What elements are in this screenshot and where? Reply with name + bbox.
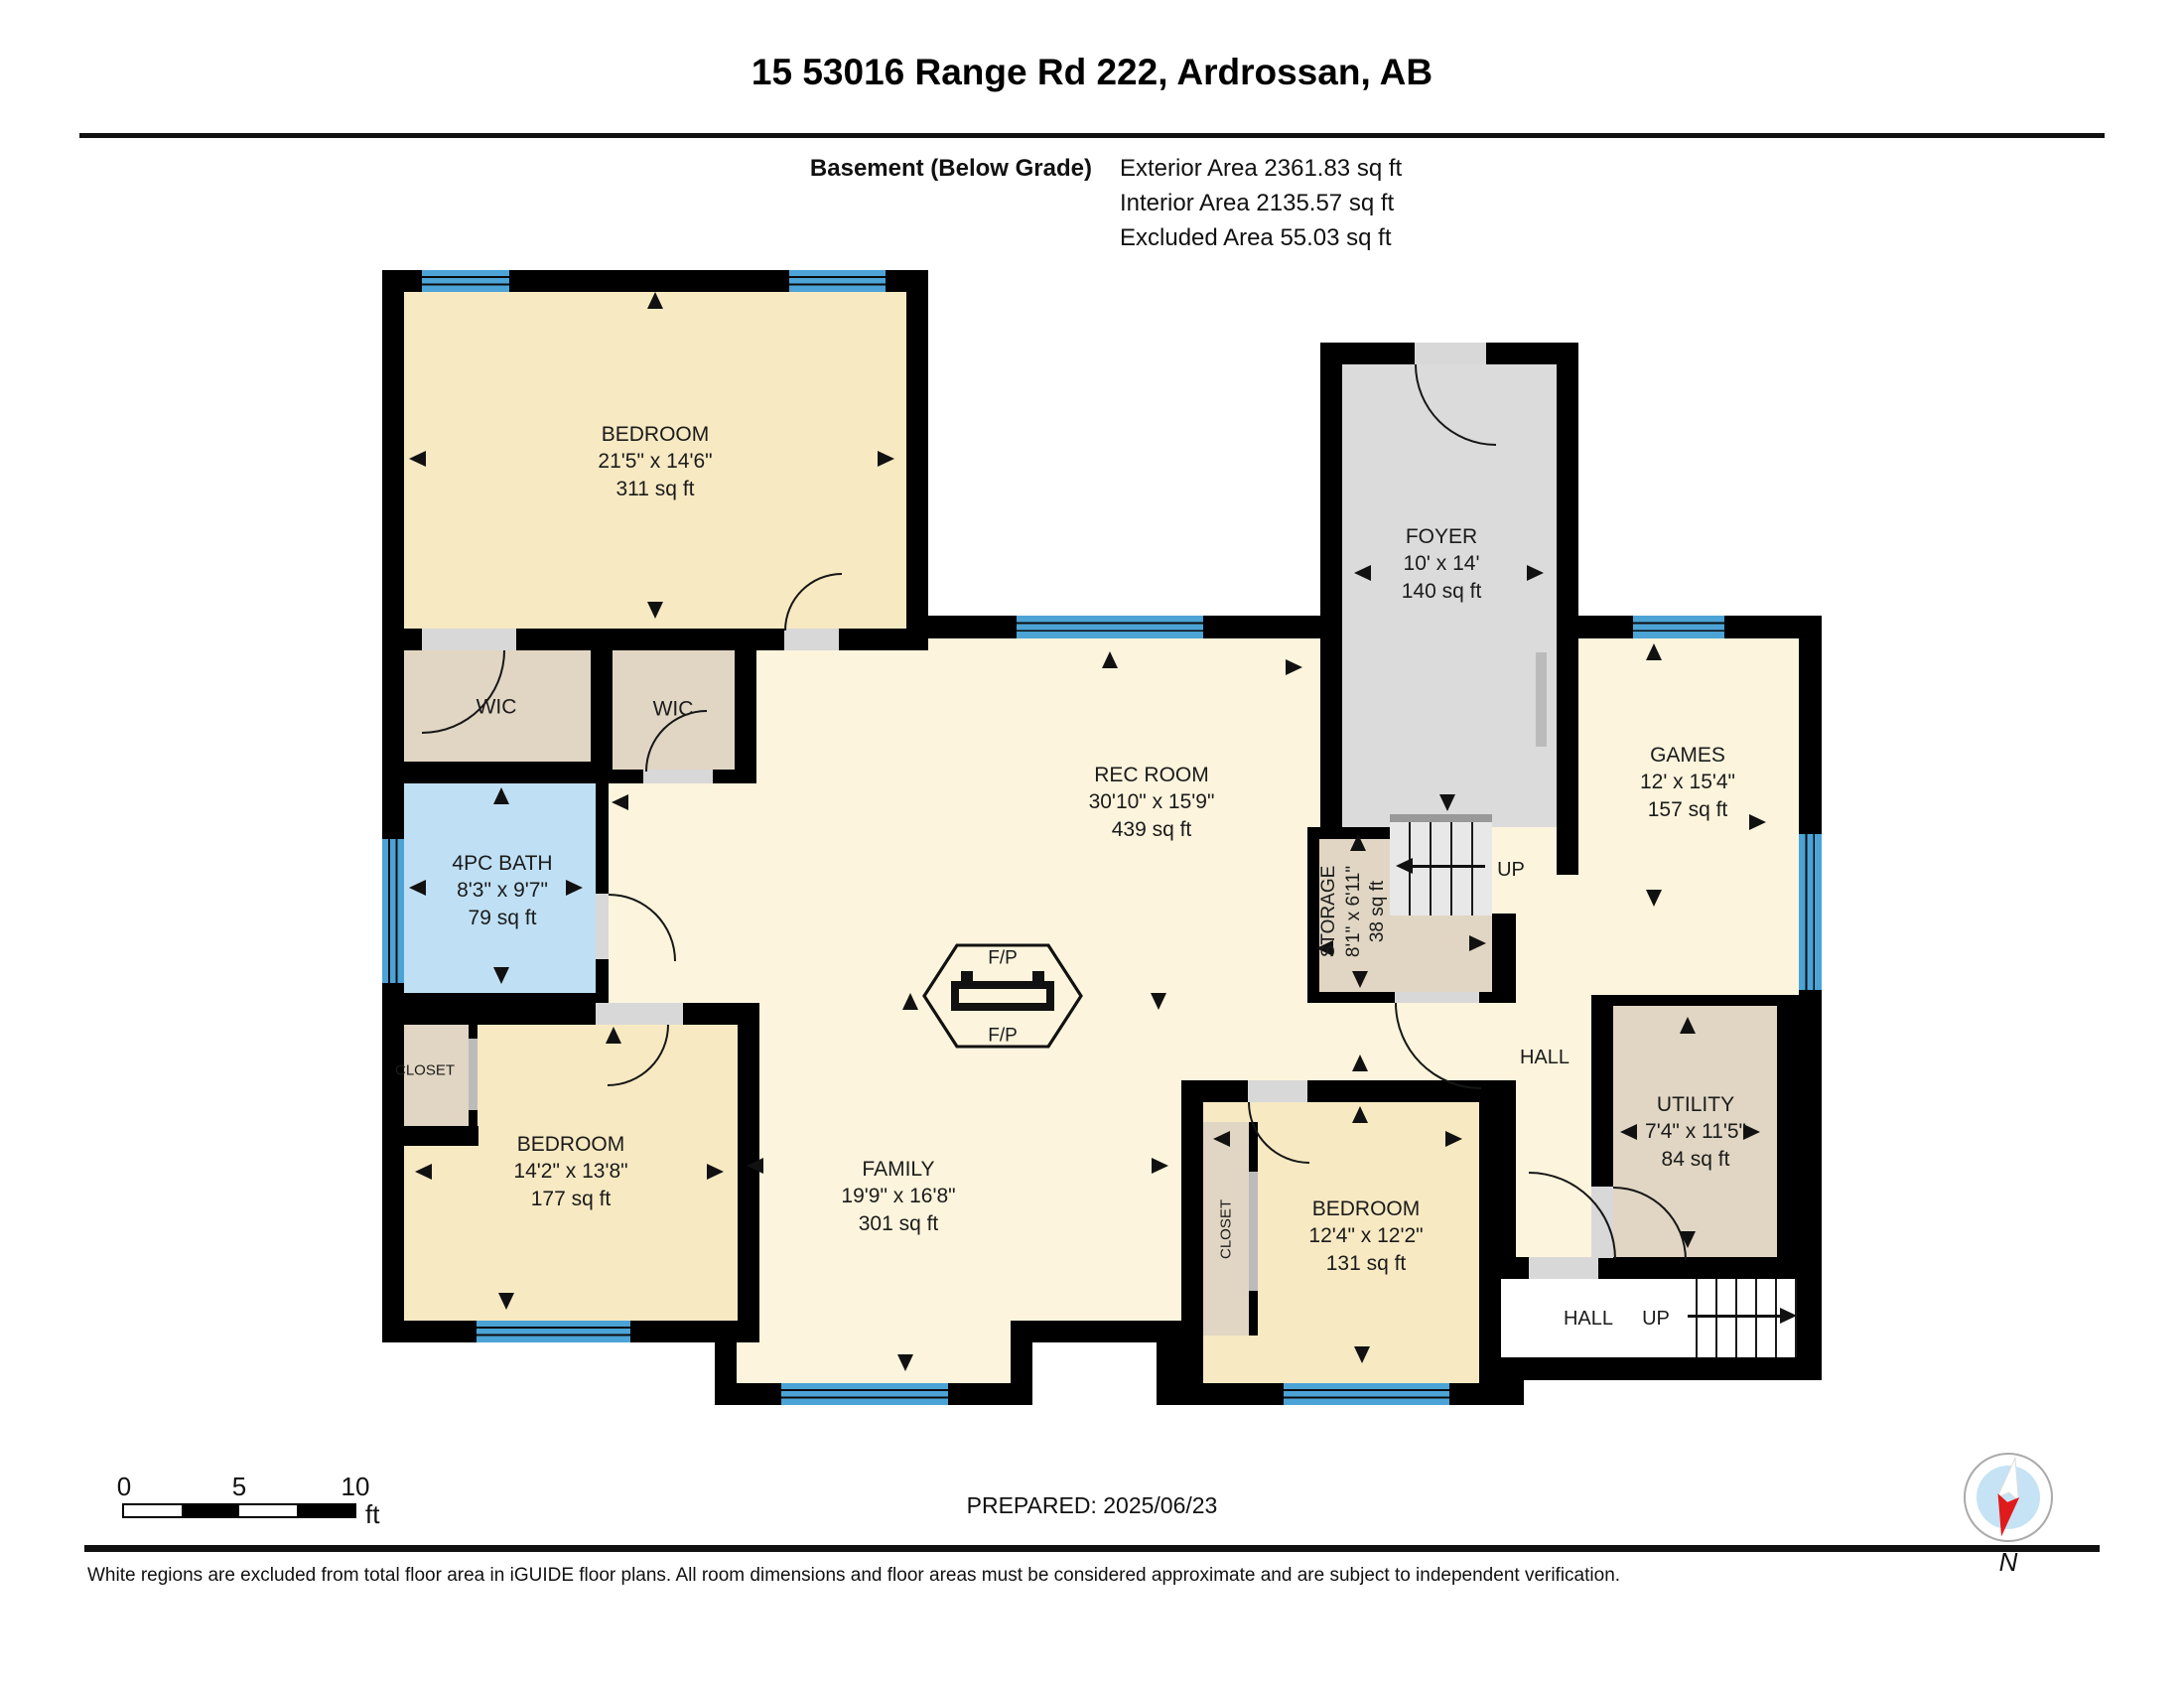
room-name: GAMES [1640,742,1735,769]
hall-by-bath-floor [609,783,756,1003]
direction-arrow [1352,1106,1368,1123]
scale-segment [239,1505,297,1516]
door-opening [1248,1080,1307,1102]
direction-arrow [1354,1346,1370,1363]
room-label-wic: WIC [653,695,694,722]
direction-arrow [647,602,663,619]
compass-icon [1963,1452,2054,1543]
scale-segment [297,1505,354,1516]
direction-arrow [1620,1124,1637,1140]
disclaimer-text: White regions are excluded from total fl… [87,1565,2093,1587]
room-name: UTILITY [1645,1091,1746,1118]
room-dims: 10' x 14' [1402,550,1482,577]
window [789,270,886,292]
room-area: 38 sq ft [1366,866,1391,958]
room-label-storage: STORAGE 8'1" x 6'11" 38 sq ft [1317,866,1391,958]
direction-arrow [498,1293,514,1310]
room-dims: 21'5" x 14'6" [598,448,712,475]
scale-bar [122,1503,356,1518]
stairs-up-label: UP [1497,857,1525,883]
fireplace-label: F/P [988,947,1018,972]
direction-arrow [1680,1231,1696,1248]
room-name: REC ROOM [1089,762,1215,788]
direction-arrow [747,1158,763,1174]
sliding-door [469,1039,478,1110]
direction-arrow [1152,1158,1168,1174]
scale-tick-10: 10 [341,1472,370,1502]
room-name: WIC [477,693,517,720]
scale-segment [124,1505,182,1516]
direction-arrow [1151,993,1166,1010]
room-name: FAMILY [841,1156,955,1183]
room-dims: 8'3" x 9'7" [452,877,552,904]
room-area: 177 sq ft [513,1186,627,1212]
wall [469,1025,478,1039]
window [1799,834,1822,990]
room-label-foyer: FOYER 10' x 14' 140 sq ft [1402,523,1482,605]
wall [1249,1291,1258,1336]
door-opening [1415,343,1486,364]
room-area: 157 sq ft [1640,796,1735,823]
room-name: HALL [1564,1306,1613,1332]
room-label-hall: HALL [1564,1306,1613,1332]
direction-arrow [1354,565,1371,581]
window [422,270,509,292]
room-label-bedroom-mid: BEDROOM 12'4" x 12'2" 131 sq ft [1308,1196,1423,1277]
room-name: BEDROOM [598,421,712,448]
stairs-arrow-head [1780,1308,1797,1324]
direction-arrow [1680,1017,1696,1034]
direction-arrow [1527,565,1544,581]
page-title: 15 53016 Range Rd 222, Ardrossan, AB [0,52,2184,93]
direction-arrow [493,967,509,984]
room-area: 131 sq ft [1308,1250,1423,1277]
room-label-closet: CLOSET [395,1060,455,1080]
room-name: FOYER [1402,523,1482,550]
room-dims: 12' x 15'4" [1640,769,1735,795]
direction-arrow [1646,643,1662,660]
direction-arrow [1352,1055,1368,1071]
room-family-floor [737,1342,1011,1383]
wall [469,1110,478,1126]
fireplace-label: F/P [988,1025,1018,1050]
header-divider [79,133,2105,138]
direction-arrow [612,794,628,810]
direction-arrow [897,1354,913,1371]
room-family-floor [759,1321,1011,1342]
direction-arrow [1469,935,1486,951]
room-name: BEDROOM [513,1131,627,1158]
floor-label: Basement (Below Grade) [596,155,1092,183]
door-opening [784,629,839,650]
room-name: STORAGE [1317,866,1342,958]
footer-divider [84,1545,2100,1552]
room-name: BEDROOM [1308,1196,1423,1222]
room-label-closet: CLOSET [1216,1199,1236,1259]
direction-arrow [606,1027,621,1044]
room-name: 4PC BATH [452,850,552,877]
window [1633,616,1724,638]
direction-arrow [415,1164,432,1180]
room-dims: 30'10" x 15'9" [1089,788,1215,815]
wall [382,1126,478,1146]
room-dims: 8'1" x 6'11" [1342,866,1367,958]
stair-landing-edge [1390,814,1492,822]
room-area: 439 sq ft [1089,816,1215,843]
window [1017,616,1203,638]
prepared-date: PREPARED: 2025/06/23 [893,1492,1291,1519]
interior-area: Interior Area 2135.57 sq ft [1120,190,1394,217]
stairs-up-label: UP [1642,1306,1670,1332]
direction-arrow [902,993,918,1010]
direction-arrow [1213,1131,1230,1147]
floor-plan-page: 15 53016 Range Rd 222, Ardrossan, AB Bas… [0,0,2184,1688]
direction-arrow [878,451,894,467]
room-area: 84 sq ft [1645,1146,1746,1173]
scale-segment [182,1505,239,1516]
door-opening [422,629,516,650]
room-label-games: GAMES 12' x 15'4" 157 sq ft [1640,742,1735,823]
stairs-up [1678,1279,1797,1357]
exterior-area: Exterior Area 2361.83 sq ft [1120,155,1402,183]
room-name: CLOSET [1216,1199,1236,1259]
scale-unit: ft [365,1499,379,1530]
direction-arrow [409,880,426,896]
room-dims: 19'9" x 16'8" [841,1183,955,1209]
direction-arrow [1749,814,1766,830]
room-area: 140 sq ft [1402,578,1482,605]
room-dims: 12'4" x 12'2" [1308,1222,1423,1249]
room-rec-floor [756,650,1320,827]
direction-arrow [1350,834,1366,851]
door-opening [1395,992,1479,1003]
direction-arrow [707,1164,724,1180]
direction-arrow [1102,651,1118,668]
direction-arrow [566,880,583,896]
direction-arrow [1352,971,1368,988]
door-opening [643,770,713,783]
direction-arrow [1445,1131,1462,1147]
pocket-door [1536,652,1547,747]
room-area: 301 sq ft [841,1210,955,1237]
door-opening [596,1003,683,1025]
room-label-wic: WIC [477,693,517,720]
scale-tick-0: 0 [117,1472,131,1502]
room-area: 311 sq ft [598,476,712,502]
room-label-bath: 4PC BATH 4PC BATH 8'3" x 9'7" 79 sq ft [452,850,552,931]
room-area: 79 sq ft [452,905,552,931]
direction-arrow [1646,890,1662,907]
stairs-arrow-head [1396,858,1413,874]
room-label-utility: UTILITY 7'4" x 11'5" 84 sq ft [1645,1091,1746,1173]
direction-arrow [1286,659,1302,675]
window [781,1383,948,1405]
room-label-rec-room: REC ROOM 30'10" x 15'9" 439 sq ft [1089,762,1215,843]
stairs-arrow-line [1688,1315,1785,1318]
room-label-family: FAMILY 19'9" x 16'8" 301 sq ft [841,1156,955,1237]
room-label-hall: HALL [1520,1045,1570,1070]
excluded-area: Excluded Area 55.03 sq ft [1120,224,1392,252]
stairs-arrow-line [1408,865,1485,868]
window [477,1321,630,1342]
room-dims: 14'2" x 13'8" [513,1158,627,1185]
scale-tick-5: 5 [232,1472,246,1502]
direction-arrow [1439,794,1455,811]
window [382,839,404,983]
room-name: WIC [653,695,694,722]
sliding-door [1249,1172,1258,1291]
direction-arrow [493,787,509,804]
room-label-bedroom-tl: BEDROOM 21'5" x 14'6" 311 sq ft [598,421,712,502]
direction-arrow [647,292,663,309]
door-opening [1529,1257,1598,1279]
room-storage-floor [1390,915,1492,992]
room-name: HALL [1520,1045,1570,1070]
direction-arrow [409,451,426,467]
door-opening [596,894,609,959]
window [1284,1383,1449,1405]
room-dims: 7'4" x 11'5" [1645,1118,1746,1145]
room-rec-floor [928,638,1320,650]
room-label-bedroom-bl: BEDROOM 14'2" x 13'8" 177 sq ft [513,1131,627,1212]
room-name: CLOSET [395,1060,455,1080]
